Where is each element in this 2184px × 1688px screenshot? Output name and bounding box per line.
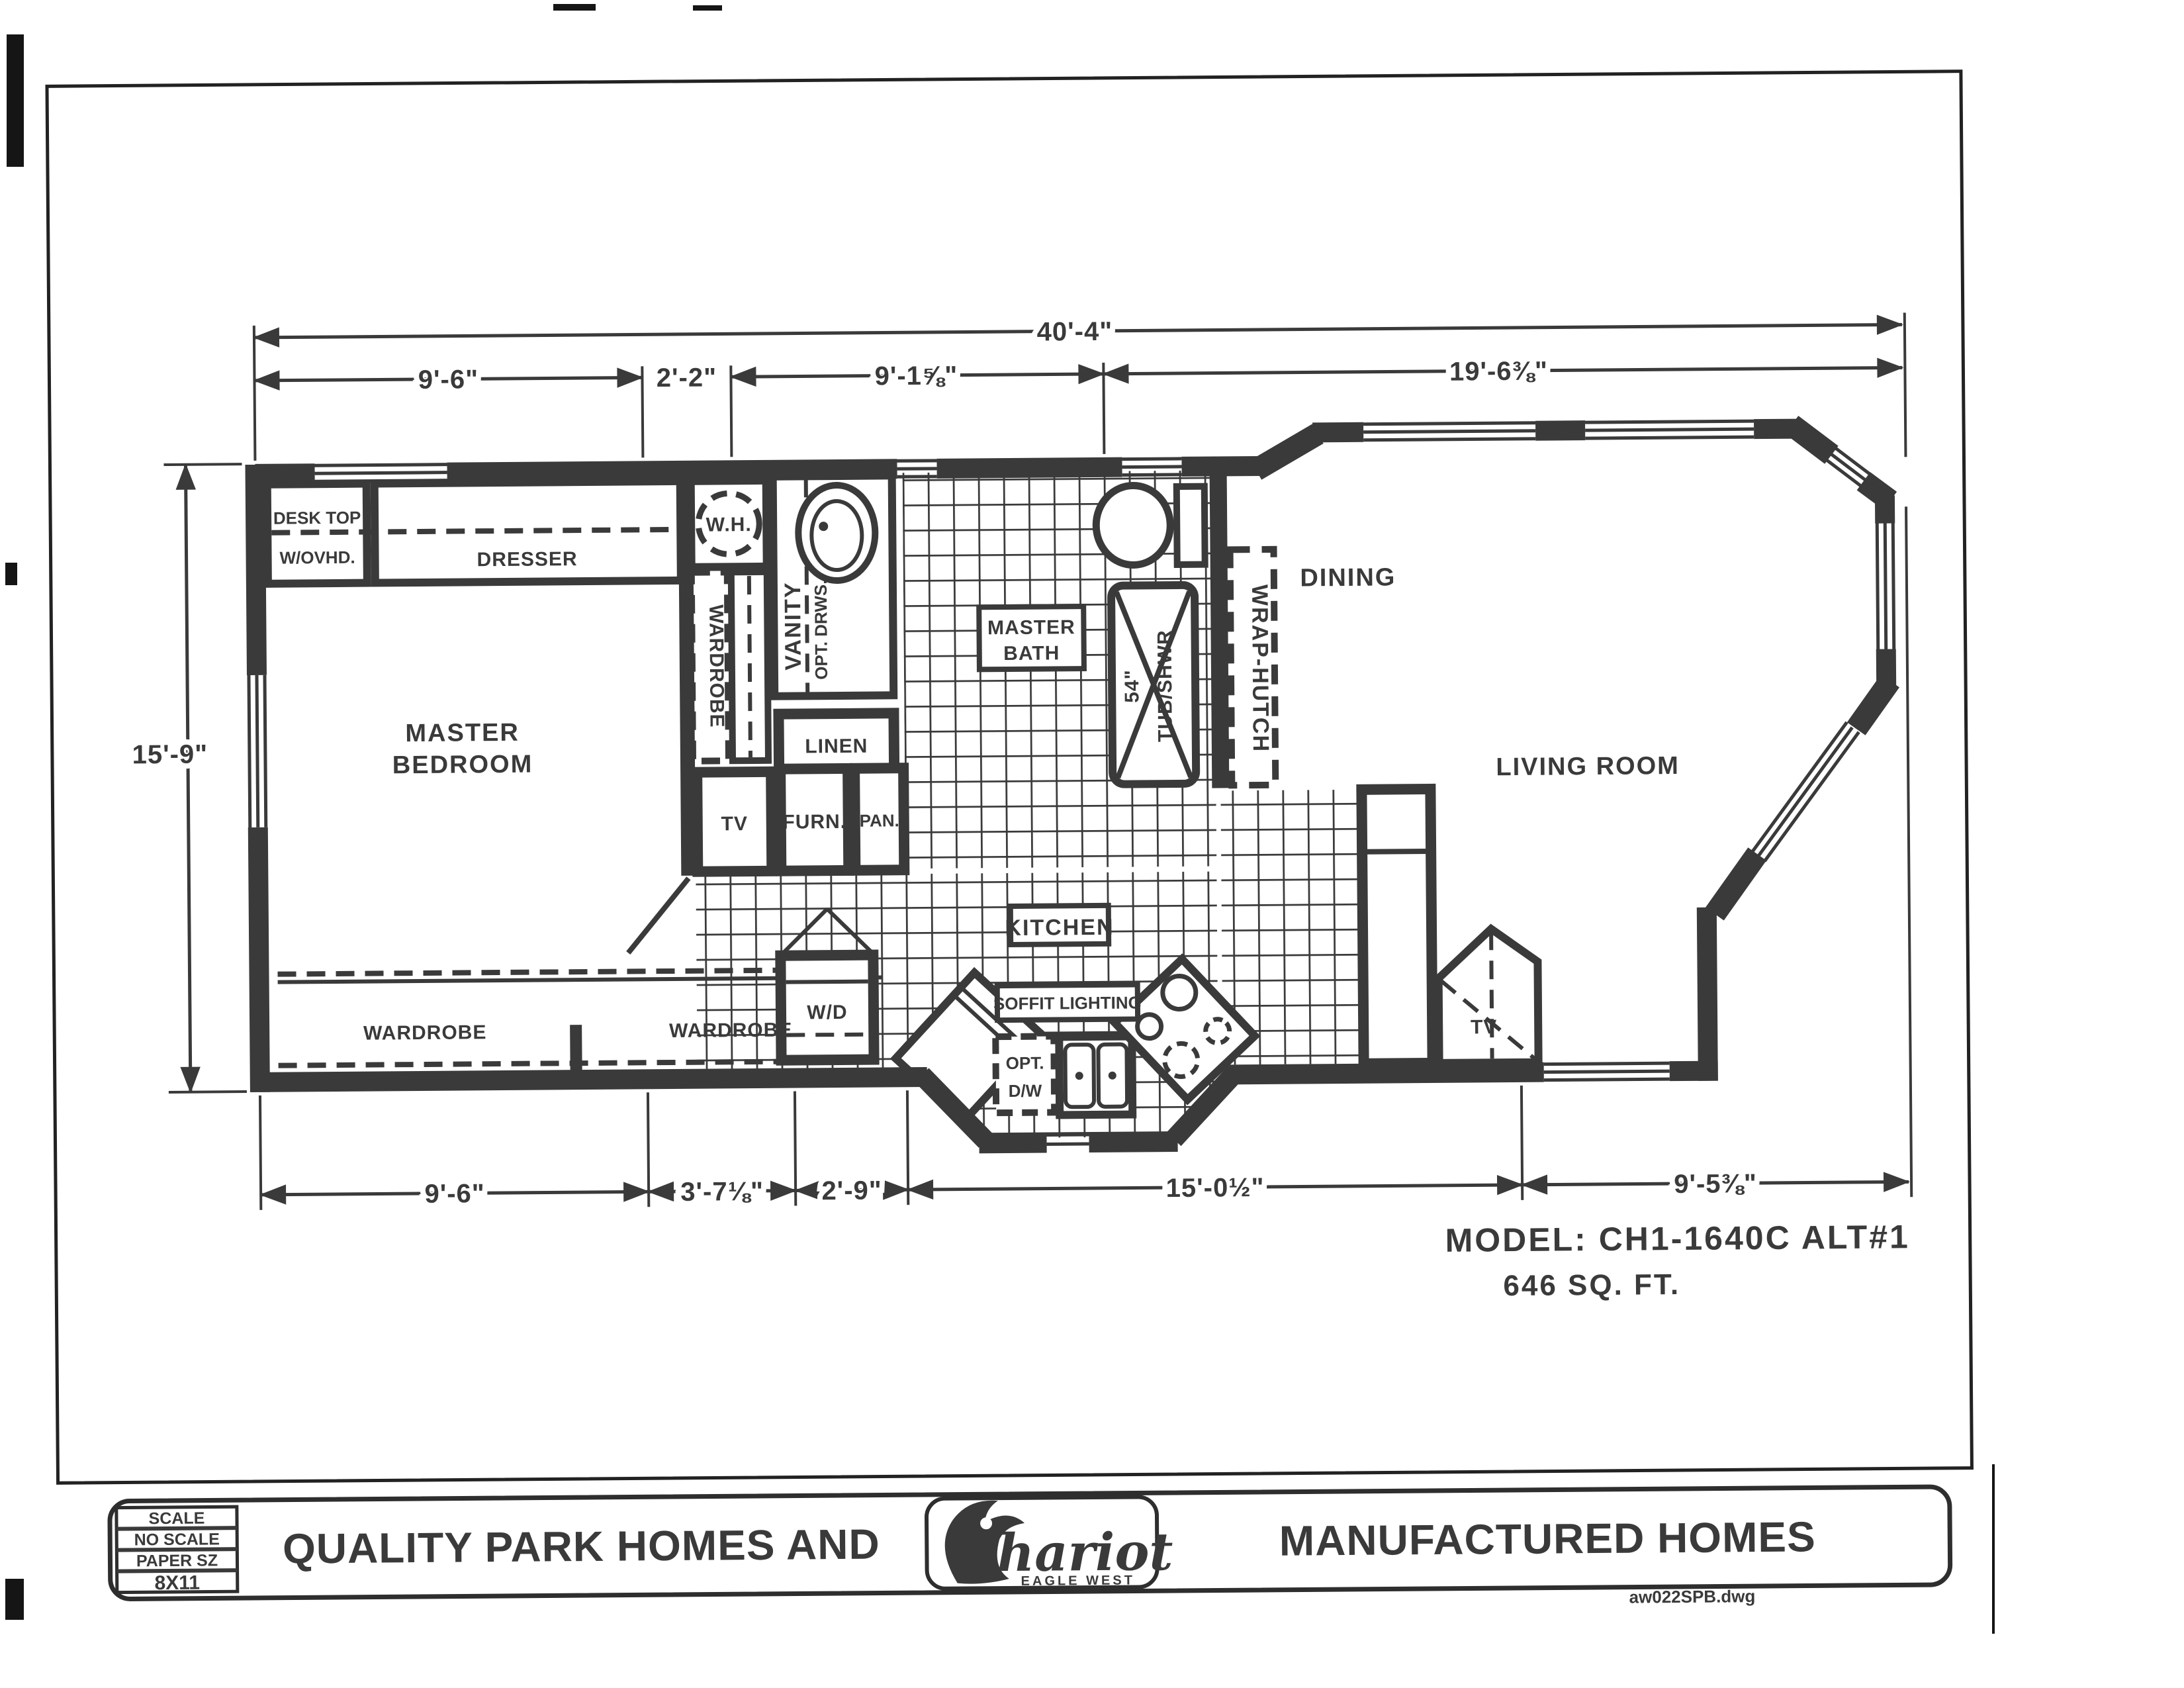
- dim-bottom-2: 3'-7⅛": [680, 1177, 764, 1207]
- wardrobe-left-label: WARDROBE: [363, 1021, 487, 1044]
- dim-bottom-4: 15'-0½": [1165, 1173, 1264, 1203]
- dim-left: 15'-9": [132, 739, 208, 769]
- washer-dryer-label: W/D: [807, 1002, 848, 1023]
- tv-living-label: TV: [1471, 1016, 1498, 1038]
- dim-top-3: 9'-1⅝": [874, 361, 958, 391]
- company-name-left: QUALITY PARK HOMES AND: [283, 1521, 880, 1573]
- dishwasher-label-1: OPT.: [1006, 1053, 1044, 1073]
- model-info: MODEL: CH1-1640C ALT#1 646 SQ. FT.: [1445, 1218, 1910, 1303]
- model-number: MODEL: CH1-1640C ALT#1: [1445, 1218, 1910, 1259]
- wardrobe-right-label: WARDROBE: [669, 1019, 793, 1042]
- dishwasher-label-2: D/W: [1009, 1081, 1042, 1101]
- wrap-hutch-label: WRAP-HUTCH: [1247, 585, 1273, 753]
- model-sqft: 646 SQ. FT.: [1503, 1268, 1680, 1302]
- bedroom-door-leaf: [627, 878, 689, 953]
- master-bath-label-2: BATH: [1003, 642, 1060, 665]
- tub-size-label: 54": [1121, 669, 1143, 703]
- kitchen-label: KITCHEN: [1005, 915, 1114, 941]
- dim-top-1: 9'-6": [418, 365, 479, 395]
- dim-overall: 40'-4": [1036, 317, 1113, 347]
- desk-ovhd-label: W/OVHD.: [279, 547, 355, 568]
- wardrobe-vertical-label: WARDROBE: [705, 604, 727, 728]
- kitchen-counter: [1361, 789, 1432, 1064]
- paper-size-label: PAPER SZ: [136, 1551, 218, 1570]
- vanity-label: VANITY: [780, 581, 806, 670]
- scanned-floor-plan-page: DESK TOP W/OVHD. DRESSER W.H. WARDROBE V…: [0, 0, 2184, 1688]
- dining-label: DINING: [1300, 563, 1396, 592]
- dim-top-4: 19'-6⅜": [1449, 357, 1548, 387]
- desk-top-label: DESK TOP: [273, 508, 361, 528]
- dim-bottom-5: 9'-5⅜": [1674, 1169, 1757, 1199]
- living-room-label: LIVING ROOM: [1496, 752, 1680, 781]
- master-bedroom-label-1: MASTER: [405, 719, 520, 747]
- floor-plan-drawing: DESK TOP W/OVHD. DRESSER W.H. WARDROBE V…: [0, 0, 2184, 1688]
- tv-closet-label: TV: [721, 813, 748, 835]
- paper-size-value: 8X11: [154, 1572, 200, 1595]
- tub-label: TUB/SHWR: [1154, 630, 1176, 742]
- toilet-tank: [1177, 487, 1205, 565]
- vanity-opt-label: OPT. DRWS.: [811, 579, 831, 679]
- water-heater-label: W.H.: [706, 514, 752, 536]
- pantry-label: PAN.: [860, 810, 899, 830]
- toilet-icon: [1096, 485, 1171, 565]
- dishwasher-optional: [995, 1036, 1054, 1113]
- master-bedroom-label-2: BEDROOM: [392, 751, 533, 780]
- master-bath-label-1: MASTER: [987, 616, 1075, 639]
- furnace-label: FURN.: [782, 811, 846, 833]
- drawing-file-name: aw022SPB.dwg: [1629, 1586, 1755, 1607]
- tv-corner-cabinet: [1438, 929, 1539, 1063]
- dresser-label: DRESSER: [477, 548, 577, 571]
- dim-bottom-3: 2'-9": [821, 1176, 882, 1206]
- dim-top-2: 2'-2": [657, 363, 717, 393]
- scale-value: NO SCALE: [134, 1530, 220, 1549]
- company-name-right: MANUFACTURED HOMES: [1279, 1513, 1816, 1564]
- soffit-lighting-label: SOFFIT LIGHTING: [993, 992, 1142, 1013]
- scale-info-box: SCALE NO SCALE PAPER SZ 8X11: [116, 1507, 238, 1594]
- linen-label: LINEN: [805, 735, 868, 758]
- chariot-logo: Chariot EAGLE WEST: [927, 1497, 1173, 1589]
- scale-label: SCALE: [148, 1509, 205, 1528]
- logo-subtext: EAGLE WEST: [1021, 1573, 1135, 1589]
- dim-bottom-1: 9'-6": [424, 1179, 485, 1209]
- title-block: SCALE NO SCALE PAPER SZ 8X11 QUALITY PAR…: [110, 1487, 1950, 1619]
